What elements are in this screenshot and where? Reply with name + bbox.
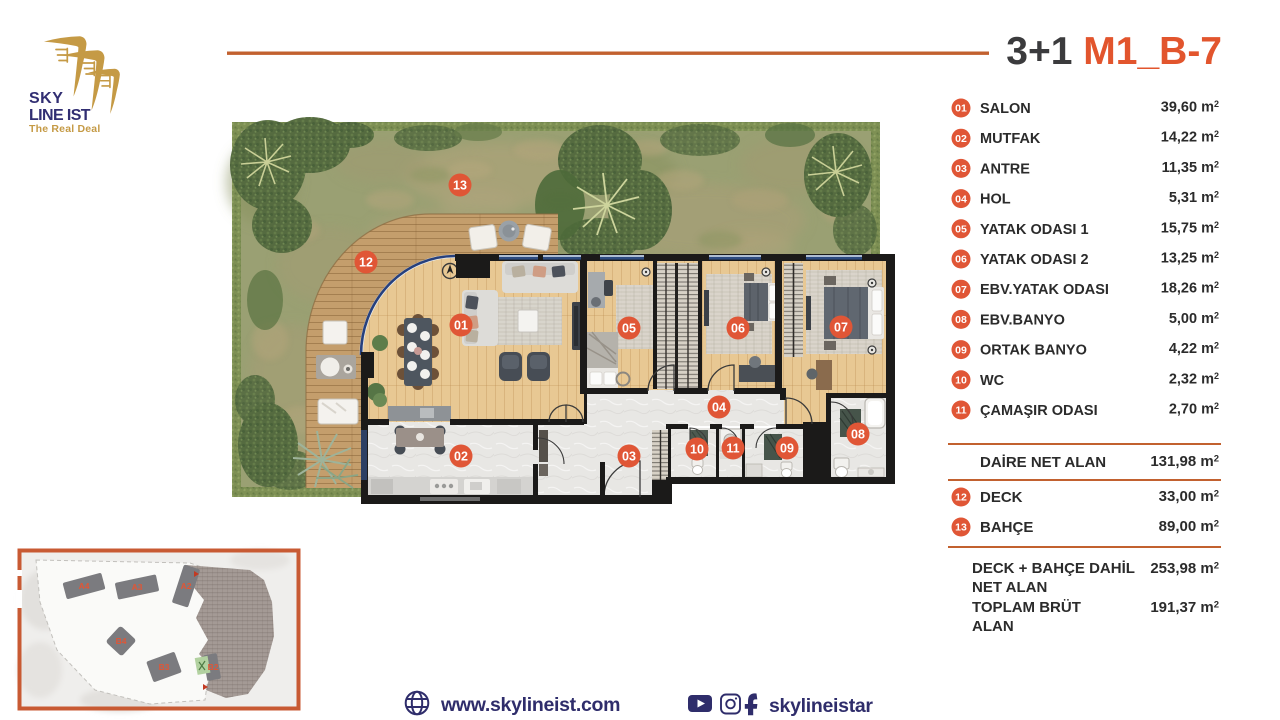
svg-text:YATAK ODASI 2: YATAK ODASI 2 [980, 252, 1089, 268]
svg-text:4,22 m2: 4,22 m2 [1169, 341, 1219, 358]
svg-text:SKY: SKY [29, 90, 63, 107]
svg-text:10: 10 [955, 375, 967, 387]
svg-text:HOL: HOL [980, 192, 1011, 208]
svg-text:2,70 m2: 2,70 m2 [1169, 401, 1219, 418]
svg-text:03: 03 [622, 449, 636, 463]
svg-text:09: 09 [780, 441, 794, 455]
svg-text:08: 08 [955, 314, 967, 326]
svg-text:07: 07 [834, 320, 848, 334]
svg-text:01: 01 [955, 103, 967, 115]
svg-text:ÇAMAŞIR ODASI: ÇAMAŞIR ODASI [980, 403, 1098, 419]
svg-text:191,37 m2: 191,37 m2 [1150, 599, 1219, 616]
svg-text:11,35 m2: 11,35 m2 [1162, 159, 1219, 176]
svg-text:15,75 m2: 15,75 m2 [1161, 220, 1219, 237]
svg-text:06: 06 [955, 254, 967, 266]
svg-text:05: 05 [955, 224, 967, 236]
svg-text:12: 12 [359, 255, 373, 269]
svg-text:02: 02 [454, 449, 468, 463]
svg-text:A2: A2 [181, 581, 192, 591]
svg-text:13,25 m2: 13,25 m2 [1161, 250, 1219, 267]
svg-text:LINE IST: LINE IST [29, 107, 91, 124]
svg-text:ALAN: ALAN [972, 618, 1014, 635]
svg-text:A4: A4 [79, 581, 90, 591]
svg-text:NET ALAN: NET ALAN [972, 579, 1047, 596]
svg-text:13: 13 [955, 522, 967, 534]
svg-text:B2: B2 [208, 662, 219, 672]
svg-text:03: 03 [955, 163, 967, 175]
svg-text:ORTAK BANYO: ORTAK BANYO [980, 343, 1087, 359]
svg-text:01: 01 [454, 318, 468, 332]
svg-text:14,22 m2: 14,22 m2 [1161, 129, 1219, 146]
svg-text:BAHÇE: BAHÇE [980, 519, 1033, 536]
svg-text:EBV.YATAK ODASI: EBV.YATAK ODASI [980, 282, 1109, 298]
svg-text:www.skylineist.com: www.skylineist.com [440, 694, 620, 716]
svg-text:33,00 m2: 33,00 m2 [1159, 488, 1219, 505]
svg-text:TOPLAM BRÜT: TOPLAM BRÜT [972, 599, 1081, 616]
svg-text:06: 06 [731, 321, 745, 335]
svg-text:12: 12 [955, 492, 967, 504]
svg-text:10: 10 [690, 442, 704, 456]
svg-text:A3: A3 [132, 582, 143, 592]
svg-text:02: 02 [955, 133, 967, 145]
svg-text:ANTRE: ANTRE [980, 161, 1030, 177]
svg-text:B3: B3 [159, 662, 170, 672]
svg-text:04: 04 [955, 193, 967, 205]
svg-text:5,00 m2: 5,00 m2 [1169, 310, 1219, 327]
svg-text:DECK: DECK [980, 489, 1023, 506]
svg-text:08: 08 [851, 427, 865, 441]
svg-text:05: 05 [622, 321, 636, 335]
svg-text:WC: WC [980, 373, 1005, 389]
svg-text:The Real Deal: The Real Deal [29, 123, 100, 135]
svg-text:DAİRE NET ALAN: DAİRE NET ALAN [980, 454, 1106, 471]
svg-text:MUTFAK: MUTFAK [980, 131, 1041, 147]
svg-text:89,00 m2: 89,00 m2 [1159, 518, 1219, 535]
svg-text:B4: B4 [116, 636, 127, 646]
svg-text:11: 11 [955, 405, 966, 417]
svg-text:skylineistar: skylineistar [769, 695, 873, 717]
svg-text:SALON: SALON [980, 101, 1031, 117]
svg-text:131,98 m2: 131,98 m2 [1150, 453, 1219, 470]
svg-text:18,26 m2: 18,26 m2 [1161, 280, 1219, 297]
svg-text:39,60 m2: 39,60 m2 [1161, 99, 1219, 116]
svg-text:5,31 m2: 5,31 m2 [1169, 190, 1219, 207]
svg-text:09: 09 [955, 344, 967, 356]
svg-text:253,98 m2: 253,98 m2 [1150, 560, 1219, 577]
svg-text:11: 11 [726, 441, 739, 455]
svg-text:07: 07 [955, 284, 967, 296]
svg-text:2,32 m2: 2,32 m2 [1169, 371, 1219, 388]
svg-text:DECK + BAHÇE DAHİL: DECK + BAHÇE DAHİL [972, 560, 1135, 577]
svg-text:04: 04 [712, 400, 726, 414]
svg-text:3+1 M1_B-7: 3+1 M1_B-7 [1006, 30, 1222, 73]
svg-text:EBV.BANYO: EBV.BANYO [980, 312, 1065, 328]
svg-text:13: 13 [453, 178, 467, 192]
svg-text:YATAK ODASI 1: YATAK ODASI 1 [980, 222, 1089, 238]
